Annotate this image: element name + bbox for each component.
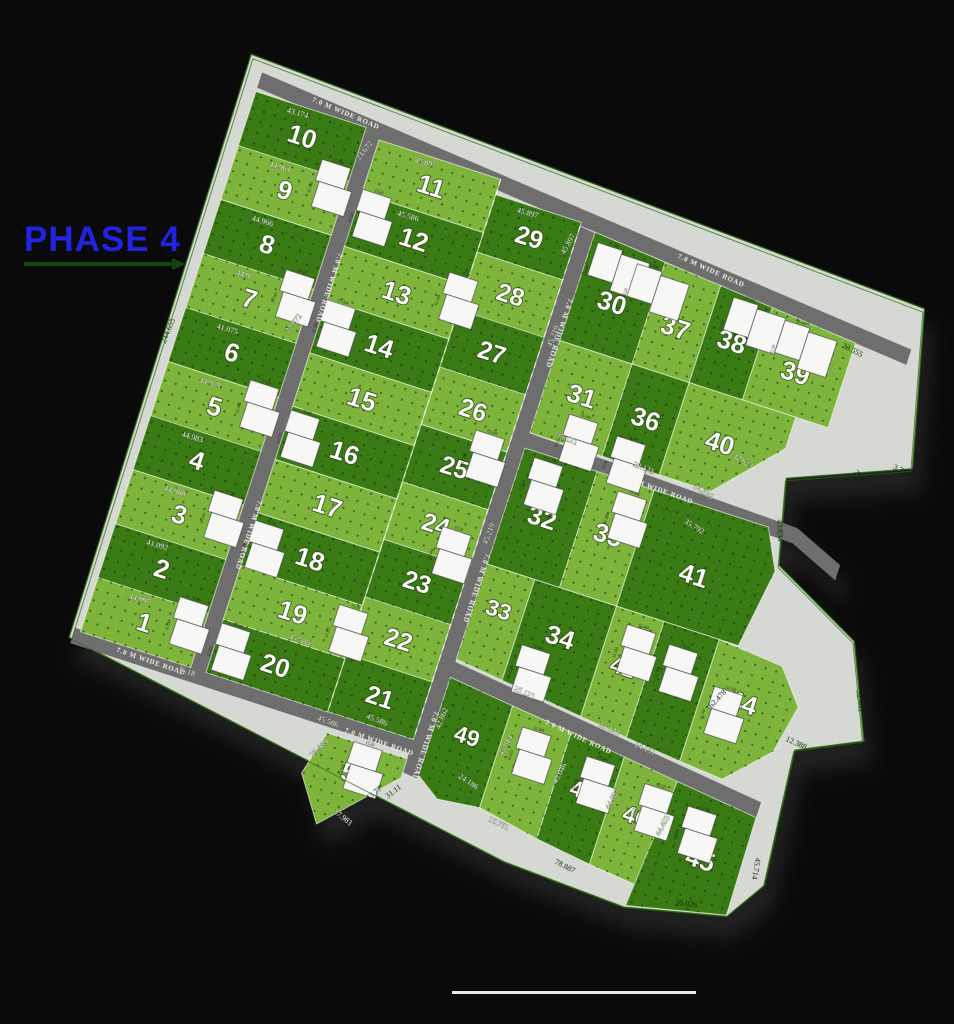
phase-underline-arrow-icon xyxy=(24,262,174,266)
phase-title-block: PHASE 4 xyxy=(24,220,181,266)
phase-title: PHASE 4 xyxy=(24,220,181,260)
scale-bar xyxy=(452,991,696,994)
site-plan-page: 1043.174944.961844.966744.97641.075544.9… xyxy=(0,0,954,1024)
site-plan-svg: 1043.174944.961844.966744.97641.075544.9… xyxy=(0,0,954,1024)
boundary-dimension-label: 43.634 xyxy=(775,519,785,541)
